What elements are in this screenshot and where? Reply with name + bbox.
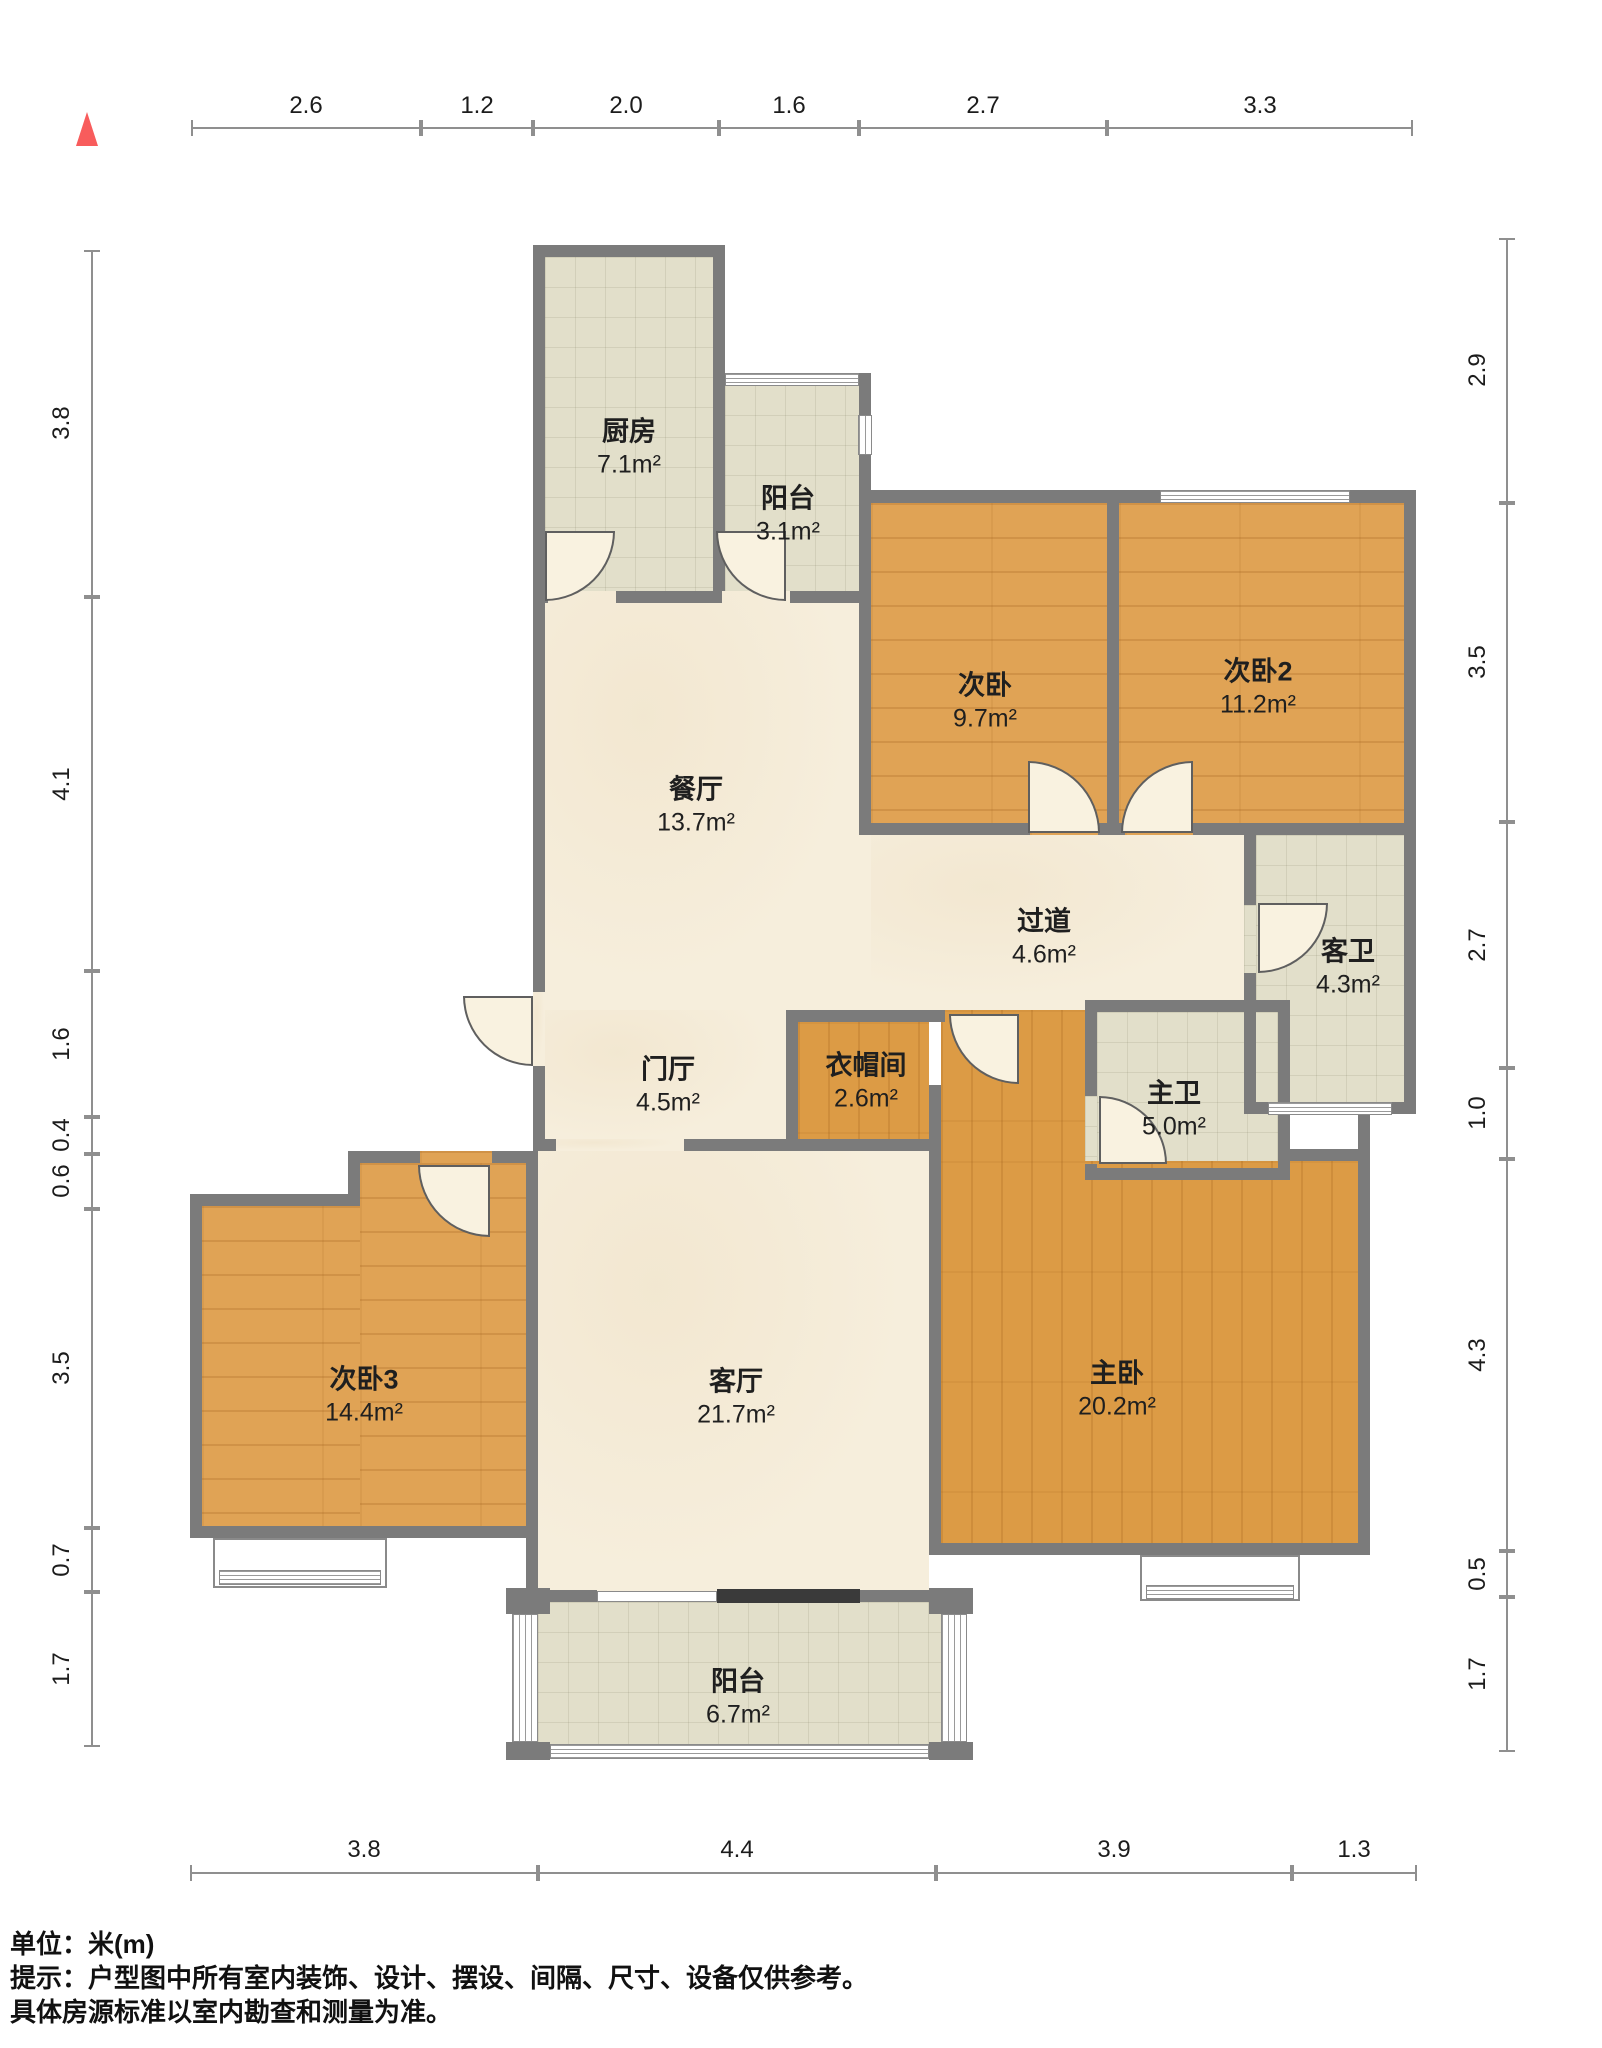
- room-label-guest-bath: 客卫 4.3m²: [1316, 936, 1380, 1001]
- sliding-door-panel: [597, 1591, 717, 1602]
- wall-segment: [786, 1139, 941, 1151]
- ruler-segment: [1292, 1865, 1417, 1881]
- dimension-label: 0.7: [48, 1543, 76, 1576]
- ruler-segment: [1499, 1068, 1515, 1159]
- wall-segment: [1085, 1000, 1290, 1012]
- room-name: 次卧: [953, 670, 1017, 704]
- entry-door-arc: [463, 996, 533, 1066]
- room-area: 4.5m²: [636, 1087, 700, 1118]
- room-label-kitchen: 厨房 7.1m²: [597, 416, 661, 481]
- ruler-segment: [859, 120, 1107, 136]
- room-name: 厨房: [597, 416, 661, 450]
- ruler-segment: [84, 597, 100, 971]
- ruler-segment: [1499, 1159, 1515, 1551]
- wall-segment: [1290, 1149, 1370, 1161]
- dimension-label: 3.5: [48, 1351, 76, 1384]
- door-opening: [1085, 1096, 1097, 1164]
- dimension-label: 0.5: [1464, 1557, 1492, 1590]
- wall-segment: [713, 373, 725, 385]
- room-area: 14.4m²: [325, 1397, 403, 1428]
- room-label-master-bedroom: 主卧 20.2m²: [1078, 1358, 1156, 1423]
- master-bedroom-floor: [941, 1161, 1358, 1543]
- wall-segment: [929, 1588, 973, 1614]
- wall-segment: [190, 1194, 360, 1206]
- wall-segment: [348, 1151, 420, 1163]
- room-name: 门厅: [636, 1054, 700, 1088]
- wall-segment: [929, 1742, 973, 1760]
- wall-segment: [1193, 823, 1416, 835]
- wall-segment: [929, 1085, 941, 1139]
- room-name: 主卧: [1078, 1358, 1156, 1392]
- wall-segment: [533, 1139, 556, 1151]
- passage-opening: [556, 1139, 684, 1151]
- wall-segment: [929, 1151, 941, 1543]
- wall-segment: [684, 1139, 786, 1151]
- window: [1268, 1102, 1392, 1115]
- room-name: 过道: [1012, 906, 1076, 940]
- dimension-label: 1.6: [772, 92, 805, 120]
- dimension-label: 3.5: [1464, 645, 1492, 678]
- room-name: 主卫: [1142, 1078, 1206, 1112]
- window: [219, 1570, 381, 1585]
- wall-segment: [1085, 1168, 1290, 1180]
- room-name: 次卧2: [1220, 656, 1296, 690]
- dimension-label: 3.3: [1243, 92, 1276, 120]
- ruler-segment: [533, 120, 719, 136]
- ruler-segment: [190, 1865, 538, 1881]
- dimension-label: 1.0: [1464, 1096, 1492, 1129]
- wall-segment: [190, 1526, 538, 1538]
- room-area: 13.7m²: [657, 807, 735, 838]
- room-label-bedroom2a: 次卧 9.7m²: [953, 670, 1017, 735]
- dimension-label: 1.2: [460, 92, 493, 120]
- dimension-label: 2.6: [289, 92, 322, 120]
- room-label-living: 客厅 21.7m²: [697, 1366, 775, 1431]
- room-area: 2.6m²: [826, 1083, 907, 1114]
- ruler-segment: [421, 120, 533, 136]
- wall-segment: [533, 245, 725, 257]
- room-area: 7.1m²: [597, 449, 661, 480]
- ruler-segment: [538, 1865, 936, 1881]
- room-label-dining: 餐厅 13.7m²: [657, 774, 735, 839]
- window: [1146, 1585, 1294, 1599]
- room-name: 餐厅: [657, 774, 735, 808]
- room-label-hallway: 过道 4.6m²: [1012, 906, 1076, 971]
- room-name: 阳台: [756, 483, 820, 517]
- dimension-label: 1.6: [48, 1027, 76, 1060]
- dimension-label: 4.3: [1464, 1338, 1492, 1371]
- ruler-segment: [84, 971, 100, 1117]
- dimension-label: 0.6: [48, 1164, 76, 1197]
- room-area: 11.2m²: [1220, 689, 1296, 720]
- dimension-label: 3.8: [347, 1836, 380, 1864]
- wall-segment: [190, 1206, 202, 1538]
- dimension-label: 3.8: [48, 406, 76, 439]
- ruler-segment: [1499, 238, 1515, 503]
- room-name: 阳台: [706, 1666, 770, 1700]
- dimension-label: 1.3: [1337, 1836, 1370, 1864]
- ruler-segment: [1107, 120, 1413, 136]
- ruler-segment: [936, 1865, 1292, 1881]
- ruler-segment: [84, 1154, 100, 1209]
- ruler-segment: [1499, 822, 1515, 1068]
- tip-line-1: 提示：户型图中所有室内装饰、设计、摆设、间隔、尺寸、设备仅供参考。: [10, 1958, 868, 1995]
- ruler-segment: [84, 1592, 100, 1747]
- window: [858, 415, 872, 455]
- room-label-closet: 衣帽间 2.6m²: [826, 1050, 907, 1115]
- entry-opening: [533, 992, 545, 1066]
- window: [725, 373, 859, 386]
- wall-segment: [1085, 1012, 1097, 1096]
- wall-segment: [1244, 1102, 1268, 1114]
- ruler-segment: [1499, 503, 1515, 822]
- dimension-label: 2.9: [1464, 353, 1492, 386]
- ruler-segment: [1499, 1597, 1515, 1752]
- wall-segment: [929, 1543, 1370, 1555]
- room-label-foyer: 门厅 4.5m²: [636, 1054, 700, 1119]
- dimension-label: 2.7: [1464, 928, 1492, 961]
- north-marker-icon: [76, 112, 98, 146]
- room-name: 次卧3: [325, 1364, 403, 1398]
- room-name: 衣帽间: [826, 1050, 907, 1084]
- wall-segment: [1244, 835, 1256, 905]
- dimension-label: 2.0: [609, 92, 642, 120]
- room-area: 21.7m²: [697, 1399, 775, 1430]
- room-area: 4.3m²: [1316, 969, 1380, 1000]
- dimension-label: 1.7: [48, 1652, 76, 1685]
- window: [941, 1614, 967, 1742]
- ruler-segment: [84, 1117, 100, 1154]
- wall-segment: [786, 1022, 798, 1139]
- ruler-segment: [84, 1528, 100, 1592]
- wall-segment: [616, 591, 722, 603]
- wall-segment: [1350, 490, 1416, 503]
- wall-segment: [859, 823, 1030, 835]
- wall-segment: [1404, 503, 1416, 1114]
- dimension-label: 2.7: [966, 92, 999, 120]
- room-area: 20.2m²: [1078, 1391, 1156, 1422]
- room-name: 客厅: [697, 1366, 775, 1400]
- floorplan-page: { "rulers": { "top": ["2.6","1.2","2.0",…: [0, 0, 1602, 2048]
- dimension-label: 0.4: [48, 1118, 76, 1151]
- sliding-door-track: [717, 1589, 860, 1603]
- dimension-label: 1.7: [1464, 1657, 1492, 1690]
- room-area: 6.7m²: [706, 1699, 770, 1730]
- dimension-label: 3.9: [1097, 1836, 1130, 1864]
- ruler-segment: [84, 1209, 100, 1528]
- ruler-segment: [84, 250, 100, 597]
- room-name: 客卫: [1316, 936, 1380, 970]
- dimension-label: 4.1: [48, 767, 76, 800]
- room-label-master-bath: 主卫 5.0m²: [1142, 1078, 1206, 1143]
- wall-segment: [1107, 503, 1119, 835]
- dimension-label: 4.4: [720, 1836, 753, 1864]
- wall-segment: [1358, 1114, 1370, 1555]
- room-label-bedroom2b: 次卧2 11.2m²: [1220, 656, 1296, 721]
- window: [550, 1744, 929, 1759]
- door-opening: [420, 1151, 492, 1163]
- door-opening: [1244, 905, 1256, 973]
- room-area: 4.6m²: [1012, 939, 1076, 970]
- room-area: 9.7m²: [953, 703, 1017, 734]
- room-area: 3.1m²: [756, 516, 820, 547]
- ruler-segment: [1499, 1551, 1515, 1597]
- window: [512, 1614, 538, 1742]
- tip-line-2: 具体房源标准以室内勘查和测量为准。: [10, 1992, 452, 2029]
- wall-segment: [1244, 973, 1256, 1102]
- wall-segment: [1278, 1012, 1290, 1180]
- wall-segment: [859, 490, 1160, 503]
- wall-segment: [506, 1588, 550, 1614]
- ruler-segment: [191, 120, 421, 136]
- wall-segment: [786, 1010, 945, 1022]
- wall-segment: [526, 1151, 538, 1602]
- room-label-bedroom3: 次卧3 14.4m²: [325, 1364, 403, 1429]
- room-area: 5.0m²: [1142, 1111, 1206, 1142]
- wall-segment: [533, 245, 545, 992]
- ruler-segment: [719, 120, 859, 136]
- window: [1160, 490, 1350, 503]
- wall-segment: [506, 1742, 550, 1760]
- unit-note: 单位：米(m): [10, 1924, 154, 1961]
- room-label-balcony-bottom: 阳台 6.7m²: [706, 1666, 770, 1731]
- room-label-balcony-top: 阳台 3.1m²: [756, 483, 820, 548]
